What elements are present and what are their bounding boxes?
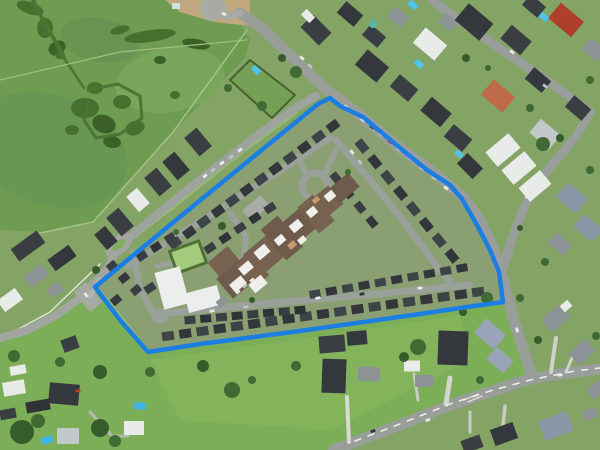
- layer-round-pool: [369, 20, 377, 28]
- aerial-map-screenshot: [0, 0, 600, 450]
- satellite-image: [0, 0, 600, 450]
